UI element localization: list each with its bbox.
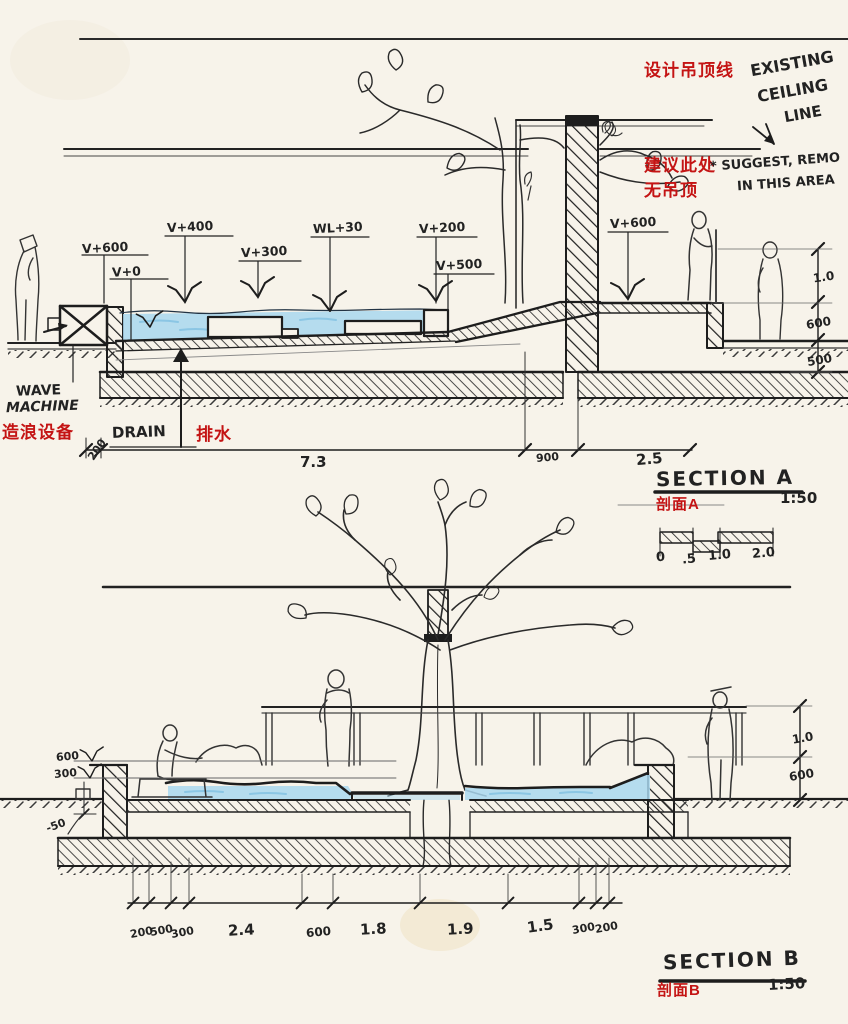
title-section-a: SECTION A (656, 467, 794, 489)
dim-a-bottom-73: 7.3 (300, 455, 327, 470)
dim-b-7: 1.5 (526, 917, 554, 936)
dim-a-bottom-900: 900 (536, 451, 560, 464)
title-section-b: SECTION B (663, 948, 801, 973)
label-machine: MACHINE (6, 399, 79, 416)
dim-a-bottom-25: 2.5 (635, 451, 663, 468)
dim-b-4: 600 (306, 925, 332, 939)
dim-b-6: 1.9 (447, 921, 474, 937)
label-wave: WAVE (16, 383, 62, 399)
note-suggest-cn-1: 建议此处 (644, 157, 716, 174)
label-drain-cn: 排水 (196, 426, 232, 443)
dim-b-right-1: 1.0 (791, 730, 814, 746)
level-b-600: 600 (56, 750, 80, 763)
label-drain: DRAIN (112, 424, 166, 441)
level-label-v400: V+400 (167, 220, 214, 235)
sketch-drawing (0, 0, 848, 1024)
dim-a-right-1: 1.0 (812, 270, 835, 285)
title-section-a-cn: 剖面A (656, 497, 700, 512)
scalebar-20: 2.0 (751, 546, 775, 561)
level-label-v500: V+500 (436, 258, 483, 273)
sketch-page: 设计吊顶线 EXISTING CEILING LINE 建议此处 无吊顶 * S… (0, 0, 848, 1024)
dim-b-5: 1.8 (360, 921, 387, 937)
scale-ratio-b: 1:50 (768, 976, 806, 993)
section-a-drawing (8, 48, 848, 458)
level-label-v600-right: V+600 (610, 216, 657, 231)
scalebar-0: 0 (655, 551, 665, 565)
level-b-300: 300 (54, 767, 78, 780)
label-wave-machine-cn: 造浪设备 (2, 424, 74, 441)
note-suggest-cn-2: 无吊顶 (644, 182, 698, 199)
scalebar-05: .5 (681, 552, 696, 566)
level-label-v0: V+0 (112, 265, 141, 279)
title-section-b-cn: 剖面B (657, 983, 701, 998)
level-label-v600-left: V+600 (82, 241, 129, 256)
scalebar-10: 1.0 (707, 548, 731, 563)
level-label-wl30: WL+30 (313, 221, 363, 236)
level-label-v300: V+300 (241, 245, 288, 260)
level-label-v200: V+200 (419, 221, 466, 236)
scale-ratio-a: 1:50 (780, 491, 817, 506)
dim-b-3: 2.4 (228, 922, 255, 938)
note-design-ceiling-cn: 设计吊顶线 (644, 62, 734, 79)
